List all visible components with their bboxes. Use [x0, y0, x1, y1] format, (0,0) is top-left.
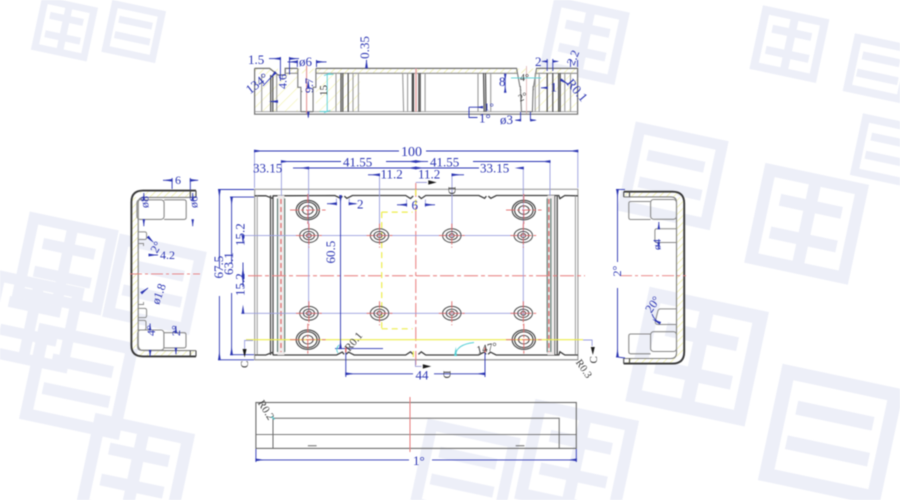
svg-text:1.5: 1.5: [248, 52, 264, 67]
svg-text:C: C: [588, 356, 600, 363]
svg-text:4.6: 4.6: [276, 74, 290, 89]
svg-text:1: 1: [551, 80, 558, 95]
svg-text:C: C: [239, 361, 251, 368]
svg-text:2: 2: [535, 54, 542, 69]
svg-text:ø4: ø4: [652, 239, 664, 251]
svg-text:2°: 2°: [517, 91, 530, 105]
svg-text:6: 6: [175, 173, 181, 187]
svg-text:2°: 2°: [610, 266, 624, 277]
svg-text:11.2: 11.2: [418, 167, 440, 182]
svg-text:100: 100: [401, 145, 422, 160]
svg-text:41.55: 41.55: [343, 155, 372, 170]
svg-text:33.15: 33.15: [480, 161, 509, 176]
svg-text:60.5: 60.5: [323, 241, 338, 264]
svg-text:4.2: 4.2: [160, 248, 175, 262]
svg-text:11.2: 11.2: [381, 167, 403, 182]
svg-text:ø6: ø6: [187, 196, 201, 208]
svg-text:ø8: ø8: [138, 196, 152, 208]
svg-text:D: D: [441, 371, 453, 379]
svg-text:0.35: 0.35: [357, 36, 372, 59]
svg-text:6: 6: [412, 198, 419, 213]
svg-text:1°: 1°: [413, 453, 425, 468]
svg-text:15.2: 15.2: [233, 223, 248, 246]
svg-text:1°: 1°: [479, 111, 491, 126]
svg-text:9.7: 9.7: [302, 78, 316, 93]
svg-text:33.15: 33.15: [253, 161, 282, 176]
svg-text:44: 44: [416, 368, 430, 383]
svg-text:2°: 2°: [169, 325, 183, 336]
svg-text:4°: 4°: [144, 325, 158, 336]
svg-text:63.1: 63.1: [221, 252, 236, 275]
svg-text:4°: 4°: [520, 73, 529, 84]
svg-text:D: D: [446, 187, 458, 195]
svg-text:R0.1: R0.1: [343, 330, 366, 354]
svg-text:ø3: ø3: [500, 112, 513, 127]
svg-text:ø6: ø6: [299, 54, 313, 69]
svg-text:8: 8: [499, 74, 506, 89]
svg-text:2: 2: [357, 197, 364, 212]
svg-text:15.2: 15.2: [233, 273, 248, 296]
svg-text:15: 15: [318, 85, 330, 97]
